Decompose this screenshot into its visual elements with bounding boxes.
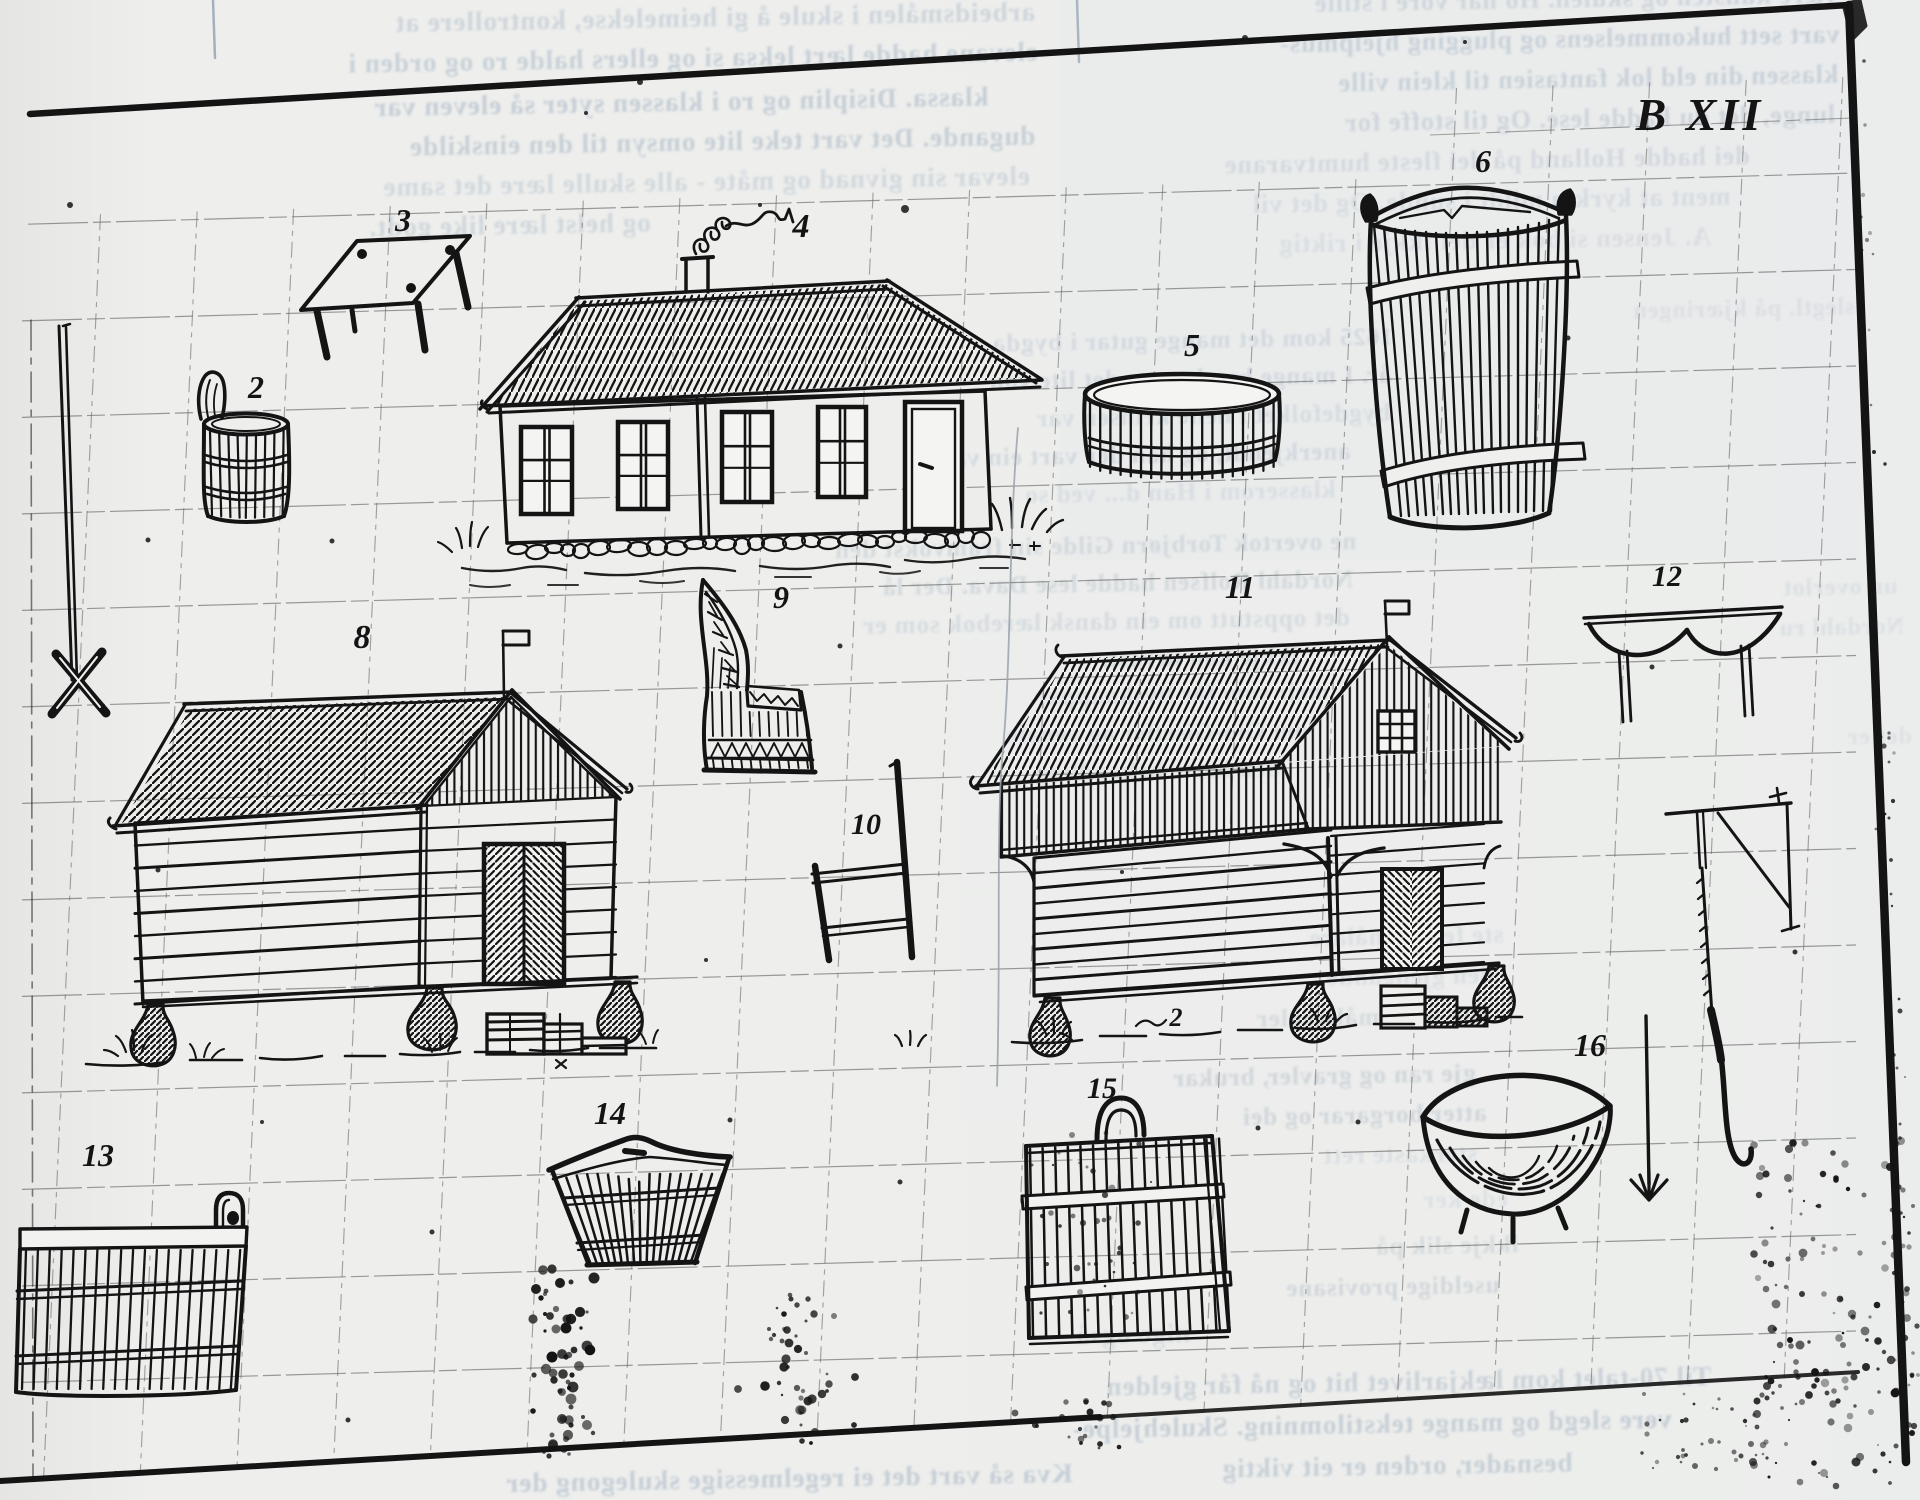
svg-text:2: 2: [247, 369, 264, 405]
svg-text:useldige provisane: useldige provisane: [1285, 1272, 1500, 1303]
svg-text:3: 3: [394, 202, 411, 238]
svg-text:9: 9: [773, 579, 789, 615]
svg-text:slegtl. på kjæringen: slegtl. på kjæringen: [1632, 294, 1854, 324]
svg-text:besnader, orden er eit viktig: besnader, orden er eit viktig: [1222, 1447, 1573, 1483]
svg-text:16: 16: [1574, 1027, 1606, 1063]
svg-text:B XII: B XII: [1635, 89, 1765, 140]
svg-text:Nordahl ru: Nordahl ru: [1778, 614, 1904, 642]
svg-text:15: 15: [1087, 1072, 1117, 1105]
svg-text:gje ran og gravler, brukar: gje ran og gravler, brukar: [1172, 1060, 1476, 1092]
svg-text:14: 14: [594, 1095, 626, 1131]
svg-text:6: 6: [1475, 143, 1491, 179]
svg-text:10: 10: [851, 808, 881, 841]
svg-text:un overlot: un overlot: [1782, 574, 1897, 602]
svg-text:8: 8: [354, 619, 371, 656]
svg-text:13: 13: [82, 1137, 114, 1173]
svg-text:atter borgarar og dei: atter borgarar og dei: [1242, 1100, 1487, 1131]
svg-text:5: 5: [1184, 327, 1200, 363]
svg-text:11: 11: [1225, 569, 1255, 605]
svg-text:4: 4: [792, 208, 810, 245]
svg-text:2: 2: [1169, 1003, 1183, 1032]
svg-text:12: 12: [1652, 560, 1682, 593]
